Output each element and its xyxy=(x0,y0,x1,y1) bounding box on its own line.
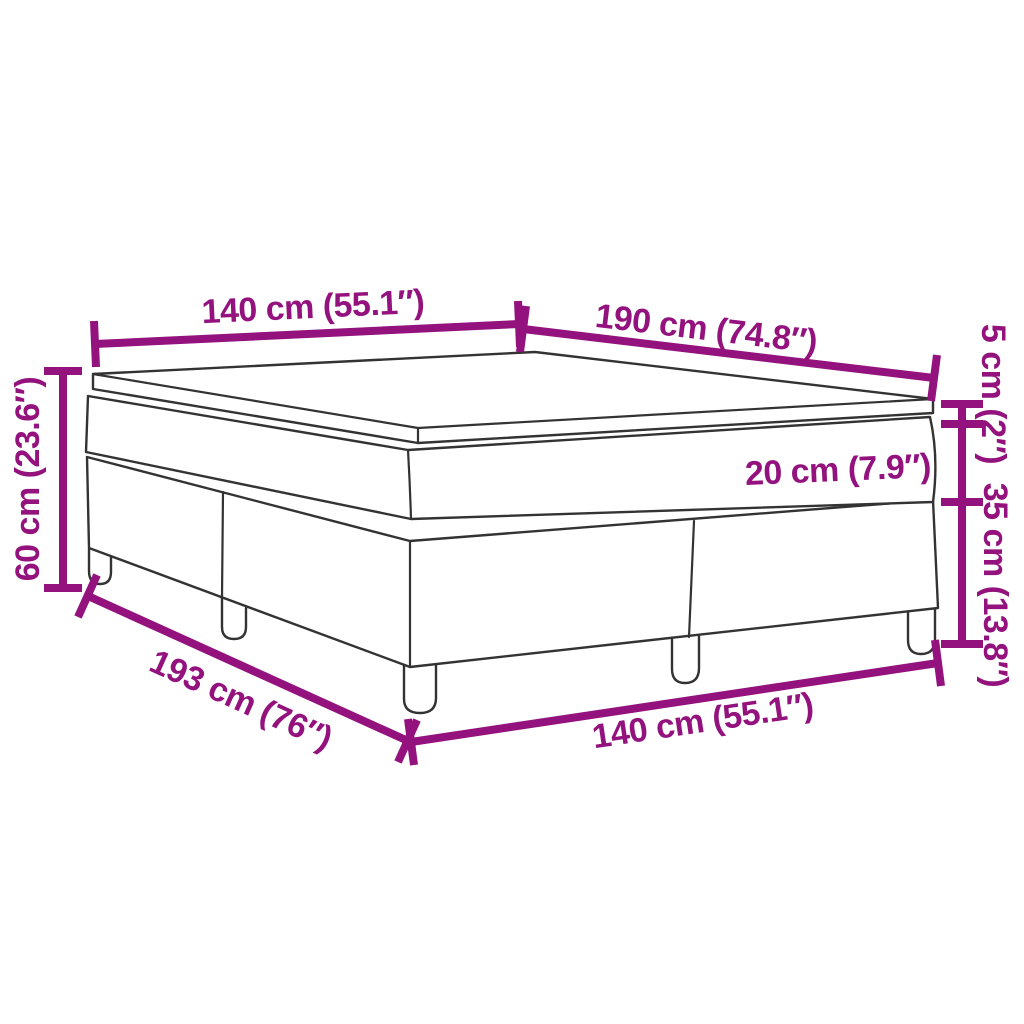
bed-leg-front-right xyxy=(908,608,935,654)
dimension-label-topper-height: 5 cm (2″) xyxy=(974,324,1012,464)
dimension-total-height: 60 cm (23.6″) xyxy=(9,371,82,588)
dimension-line-top-width xyxy=(95,324,519,344)
dimension-label-base-height: 35 cm (13.8″) xyxy=(976,483,1014,687)
tick-bottom-width-right xyxy=(935,640,941,686)
dimension-label-mattress-height: 20 cm (7.9″) xyxy=(744,447,932,493)
dimension-label-total-height: 60 cm (23.6″) xyxy=(9,377,47,581)
tick-top-width-left xyxy=(94,321,96,367)
dimension-top-width: 140 cm (55.1″) xyxy=(94,283,520,367)
bed-base-left-seam xyxy=(222,492,223,598)
bed-leg-front-corner xyxy=(404,662,436,713)
bed-dimension-drawing: 140 cm (55.1″) 190 cm (74.8″) 5 cm (2″) … xyxy=(0,0,1024,1024)
tick-length-right xyxy=(931,355,937,401)
dimension-label-top-width: 140 cm (55.1″) xyxy=(201,283,425,331)
bed-leg-front-middle xyxy=(672,636,699,683)
dimension-diagram: 140 cm (55.1″) 190 cm (74.8″) 5 cm (2″) … xyxy=(0,0,1024,1024)
dimension-right-heights: 5 cm (2″) 35 cm (13.8″) xyxy=(941,324,1014,687)
